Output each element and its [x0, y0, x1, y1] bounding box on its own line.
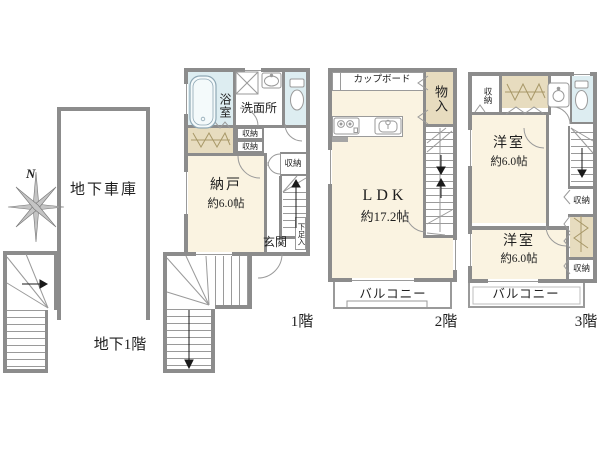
window [352, 278, 414, 282]
window [488, 279, 538, 283]
closet-1f [188, 128, 233, 153]
room-lower-size-label: 約6.0帖 [489, 253, 549, 266]
closet-top-3f [502, 76, 548, 108]
floor3-label: 3階 [568, 314, 600, 331]
wall [248, 256, 252, 309]
wall [3, 251, 58, 255]
wall [423, 235, 453, 238]
ldk-size-label: 約17.2帖 [352, 210, 418, 225]
ldk-label: LDK [352, 187, 418, 205]
window [453, 240, 457, 270]
wall [233, 72, 236, 125]
floor2-outline: カップボード 物入 LDK 約17.2帖 [328, 68, 457, 282]
basement-floor-label: 地下1階 [87, 337, 153, 354]
basement-staircase [3, 251, 58, 373]
monoire-label: 物入 [432, 82, 447, 116]
storage-top-label: 収納 [478, 80, 492, 110]
window [468, 234, 472, 266]
window [184, 84, 188, 114]
kitchen-counter-end [332, 137, 348, 142]
kitchen-counter [332, 116, 403, 137]
window [468, 130, 472, 166]
floor1-label: 1階 [284, 314, 320, 331]
wall [45, 310, 48, 373]
stair-treads [167, 309, 211, 369]
room-toilet-1f [285, 72, 306, 125]
wall [54, 255, 58, 310]
storage-b-label: 収納 [238, 142, 262, 151]
stair-treads-2f [426, 132, 453, 230]
closet-right-3f [570, 217, 593, 257]
window [245, 68, 261, 72]
floor1-staircase-wing [163, 252, 252, 373]
wall [163, 369, 215, 373]
floor3-outline: 収納 洋室 約6.0帖 収納 収納 洋室 約6.0帖 [468, 72, 597, 283]
wall [279, 176, 282, 236]
floor2-label: 2階 [428, 314, 464, 331]
garage-outline [57, 107, 150, 320]
window [196, 252, 232, 256]
window [574, 72, 590, 76]
shoe-cabinet-label: 下足入 [296, 219, 305, 249]
wall [546, 115, 549, 226]
compass-icon: N [8, 166, 64, 242]
stair-treads-3f [571, 132, 593, 184]
wall [282, 72, 285, 125]
storage-a-label: 収納 [238, 129, 262, 138]
room-lower-label: 洋室 [489, 234, 549, 250]
room-toilet-3f [572, 76, 593, 122]
window [184, 172, 188, 214]
storage-mid-label: 収納 [570, 196, 593, 206]
floor1-outline: 浴室 洗面所 収納 収納 収納 納戸 約6.0帖 玄関 下足入 [184, 68, 310, 256]
wall [3, 369, 48, 373]
room-upper-label: 洋室 [479, 136, 539, 152]
cupboard-side-box [332, 72, 341, 91]
wall [568, 126, 570, 186]
entrance-label: 玄関 [258, 236, 292, 250]
wall [548, 76, 551, 112]
wall [215, 305, 252, 309]
wall [163, 252, 188, 256]
storeroom-size-label: 約6.0帖 [196, 198, 256, 211]
stair-treads [215, 256, 248, 305]
compass-north-label: N [25, 166, 36, 181]
floor-plan-page: { "colors": { "wall": "#8c8c8c", "thin_l… [0, 0, 600, 450]
stair-treads [7, 310, 45, 369]
washroom-label: 洗面所 [236, 102, 282, 116]
balcony-2f-label: バルコニー [343, 287, 443, 301]
wall [570, 122, 593, 124]
storeroom-label: 納戸 [196, 178, 256, 194]
wall [566, 230, 569, 279]
storage-right-label: 収納 [280, 159, 306, 169]
bathroom-label: 浴室 [216, 86, 231, 126]
balcony-3f-label: バルコニー [476, 287, 576, 301]
cupboard-label: カップボード [342, 75, 422, 86]
garage-label: 地下車庫 [61, 182, 147, 199]
room-upper-size-label: 約6.0帖 [479, 156, 539, 169]
window [328, 150, 332, 184]
wall [211, 309, 215, 373]
storage-bottom-label: 収納 [570, 264, 593, 274]
